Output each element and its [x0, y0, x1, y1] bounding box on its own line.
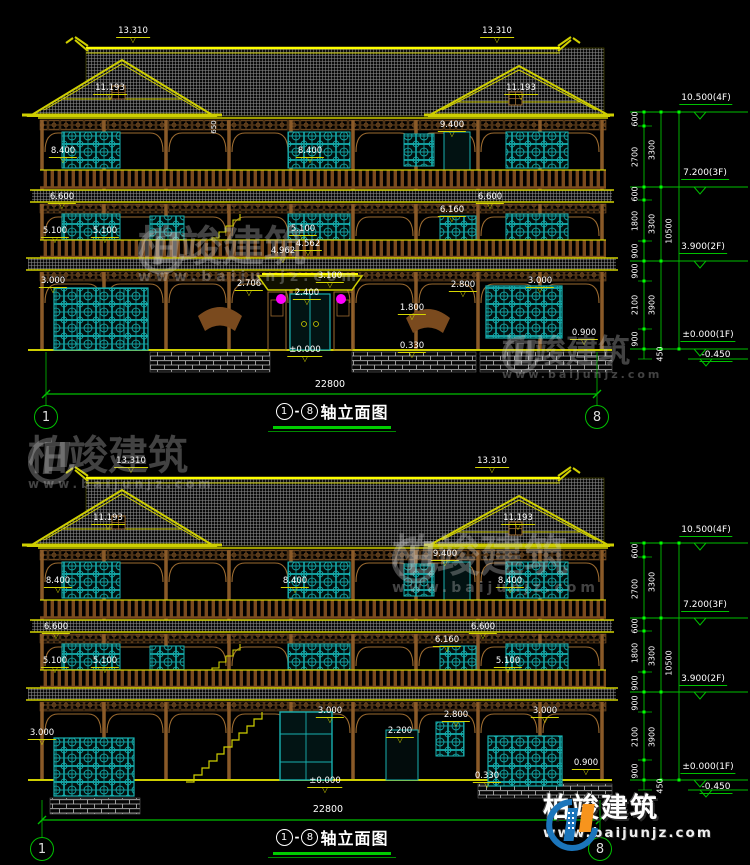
dim-label: 2100▽: [632, 293, 641, 317]
dim-label: 3300▽: [649, 212, 658, 236]
dim-label: 0.900▽: [570, 329, 598, 345]
dim-label: 5.100▽: [41, 657, 69, 673]
fan-ornament-left: [198, 307, 242, 331]
dim-label: 8.400▽: [44, 577, 72, 593]
dim-label: 650▽: [211, 118, 219, 135]
dim-label: ±0.000▽: [307, 777, 342, 793]
elevation-triangle-icon: ▽: [91, 524, 125, 530]
elevation-triangle-icon: ▽: [526, 287, 554, 293]
elevation-triangle-icon: ▽: [44, 587, 72, 593]
dim-label: 10500▽: [666, 216, 675, 245]
elevation-triangle-icon: ▽: [433, 646, 461, 652]
dim-label: 900▽: [632, 693, 641, 712]
lattice-window-right: [486, 286, 562, 338]
brand-logo: 柏竣建筑www.baijunjz.com: [543, 795, 713, 841]
elevation-triangle-icon: ▽: [501, 524, 535, 530]
elevation-triangle-icon: ▽: [41, 667, 69, 673]
dim-label: 6.160▽: [438, 206, 466, 222]
dim-label: 13.310▽: [114, 457, 148, 473]
dim-label: 13.310▽: [116, 27, 150, 43]
dim-label: 3.100▽: [316, 272, 344, 288]
elevation-triangle-icon: ▽: [480, 37, 514, 43]
dim-label: 3.900(2F)▽: [679, 243, 727, 254]
elevation-triangle-icon: ▽: [91, 237, 119, 243]
dim-label: 6.600▽: [42, 623, 70, 639]
elevation-triangle-icon: ▽: [307, 787, 342, 793]
elevation-triangle-icon: ▽: [431, 560, 459, 566]
dim-label: ±0.000▽: [287, 346, 322, 362]
elevation-triangle-icon: ▽: [316, 282, 344, 288]
dim-label: 4.962▽: [269, 247, 297, 263]
dim-label: 6.600▽: [476, 193, 504, 209]
dim-label: 900▽: [632, 329, 641, 348]
elevation-triangle-icon: ▽: [438, 216, 466, 222]
dim-label: 22800▽: [311, 805, 345, 816]
brand-logo-icon: [543, 795, 601, 859]
elevation-triangle-icon: ▽: [235, 290, 263, 296]
axis-bubble-1-bottom: 1: [30, 837, 54, 861]
dim-label: 3900▽: [649, 725, 658, 749]
dim-label: 900▽: [632, 261, 641, 280]
dim-label: 900▽: [632, 761, 641, 780]
elevation-triangle-icon: ▽: [281, 587, 309, 593]
dim-label: 1.800▽: [398, 304, 426, 320]
dim-label: 450▽: [657, 344, 666, 363]
dim-label: ±0.000(1F)▽: [680, 331, 735, 342]
dim-label: 6.600▽: [48, 193, 76, 209]
elevation-triangle-icon: ▽: [473, 782, 501, 788]
dim-label: ±0.000(1F)▽: [680, 763, 735, 774]
axis-circle-from: 1: [276, 403, 293, 420]
elevation-triangle-icon: ▽: [570, 339, 598, 345]
axis-bubble-8-top: 8: [585, 405, 609, 429]
dim-label: 2.800▽: [442, 711, 470, 727]
dim-label: 900▽: [632, 241, 641, 260]
dim-label: 8.400▽: [496, 577, 524, 593]
elevation-triangle-icon: ▽: [504, 94, 538, 100]
dim-label: -0.450▽: [699, 783, 732, 794]
dim-label: 1800▽: [632, 209, 641, 233]
elevation-triangle-icon: ▽: [469, 633, 497, 639]
axis-circle-to: 8: [301, 403, 318, 420]
elevation-triangle-icon: ▽: [296, 157, 324, 163]
dim-label: 2.800▽: [449, 281, 477, 297]
elevation-triangle-icon: ▽: [494, 667, 522, 673]
dim-label: 9.400▽: [438, 121, 466, 137]
elevation-triangle-icon: ▽: [39, 287, 67, 293]
dim-label: 2.400▽: [293, 289, 321, 305]
elevation-triangle-icon: ▽: [48, 203, 76, 209]
dim-label: 2700▽: [632, 145, 641, 169]
dim-label: 900▽: [632, 673, 641, 692]
elevation-triangle-icon: ▽: [114, 467, 148, 473]
elevation-triangle-icon: ▽: [398, 314, 426, 320]
dim-label: 2.200▽: [386, 727, 414, 743]
dim-label: 11.193▽: [504, 84, 538, 100]
dim-label: 7.200(3F)▽: [681, 169, 729, 180]
dim-label: 600▽: [632, 541, 641, 560]
dim-label: 3.000▽: [28, 729, 56, 745]
dim-label: 5.100▽: [41, 227, 69, 243]
dim-label: 600▽: [632, 109, 641, 128]
dim-label: 3300▽: [649, 138, 658, 162]
dim-label: 5.100▽: [91, 657, 119, 673]
elevation-triangle-icon: ▽: [398, 352, 426, 358]
elevation-triangle-icon: ▽: [294, 250, 322, 256]
elevation-triangle-icon: ▽: [442, 721, 470, 727]
dim-label: 2.706▽: [235, 280, 263, 296]
dim-label: -0.450▽: [699, 351, 732, 362]
dim-label: 8.400▽: [296, 147, 324, 163]
dim-label: 3.000▽: [39, 277, 67, 293]
elevation-triangle-icon: ▽: [438, 131, 466, 137]
elevation-triangle-icon: ▽: [287, 356, 322, 362]
small-window: [436, 722, 464, 756]
dim-label: 3.000▽: [526, 277, 554, 293]
dim-label: 3300▽: [649, 644, 658, 668]
elevation-triangle-icon: ▽: [269, 257, 297, 263]
lantern-left: [276, 294, 286, 304]
dim-label: 13.310▽: [475, 457, 509, 473]
elevation-triangle-icon: ▽: [49, 157, 77, 163]
dim-label: 11.193▽: [501, 514, 535, 530]
dim-label: 10.500(4F)▽: [679, 94, 732, 105]
elevation-triangle-icon: ▽: [42, 633, 70, 639]
bottom-drawing-title: 1-8轴立面图: [268, 825, 396, 858]
elevation-triangle-icon: ▽: [116, 37, 150, 43]
elevation-triangle-icon: ▽: [476, 203, 504, 209]
elevation-triangle-icon: ▽: [293, 299, 321, 305]
axis-circle-to: 8: [301, 829, 318, 846]
dim-label: 11.193▽: [93, 84, 127, 100]
lattice-doors-left: [54, 288, 148, 350]
dim-label: 1800▽: [632, 641, 641, 665]
elevation-triangle-icon: ▽: [93, 94, 127, 100]
title-text: 轴立面图: [320, 399, 388, 423]
dim-label: 0.330▽: [398, 342, 426, 358]
elevation-triangle-icon: ▽: [41, 237, 69, 243]
elevation-triangle-icon: ▽: [386, 737, 414, 743]
lattice-window-left: [54, 738, 134, 796]
dim-label: 600▽: [632, 616, 641, 635]
dim-label: 10500▽: [666, 648, 675, 677]
dim-label: 3.900(2F)▽: [679, 675, 727, 686]
elevation-triangle-icon: ▽: [449, 291, 477, 297]
dim-label: 3900▽: [649, 293, 658, 317]
elevation-triangle-icon: ▽: [496, 587, 524, 593]
dim-label: 22800▽: [313, 380, 347, 391]
dim-label: 8.400▽: [49, 147, 77, 163]
title-text: 轴立面图: [320, 825, 388, 849]
dim-label: 600▽: [632, 184, 641, 203]
dim-label: 5.100▽: [494, 657, 522, 673]
dim-label: 10.500(4F)▽: [679, 526, 732, 537]
elevation-triangle-icon: ▽: [475, 467, 509, 473]
dim-label: 8.400▽: [281, 577, 309, 593]
top-drawing-title: 1-8轴立面图: [268, 399, 396, 432]
dim-label: 2100▽: [632, 725, 641, 749]
elevation-triangle-icon: ▽: [531, 717, 559, 723]
dim-label: 4.562▽: [294, 240, 322, 256]
dim-label: 0.900▽: [572, 759, 600, 775]
dim-label: 3.000▽: [316, 707, 344, 723]
elevation-triangle-icon: ▽: [91, 667, 119, 673]
dim-label: 5.100▽: [91, 227, 119, 243]
dim-label: 6.600▽: [469, 623, 497, 639]
dim-label: 2700▽: [632, 577, 641, 601]
dim-label: 3300▽: [649, 570, 658, 594]
dim-label: 11.193▽: [91, 514, 125, 530]
axis-bubble-1-top: 1: [34, 405, 58, 429]
dim-label: 0.330▽: [473, 772, 501, 788]
dim-label: 7.200(3F)▽: [681, 601, 729, 612]
cad-canvas: 13.310▽13.310▽11.193▽11.193▽9.400▽650▽8.…: [0, 0, 750, 865]
dim-label: 13.310▽: [480, 27, 514, 43]
lantern-right: [336, 294, 346, 304]
elevation-triangle-icon: ▽: [316, 717, 344, 723]
axis-circle-from: 1: [276, 829, 293, 846]
dim-label: 9.400▽: [431, 550, 459, 566]
elevation-triangle-icon: ▽: [572, 769, 600, 775]
dim-label: 6.160▽: [433, 636, 461, 652]
elevation-triangle-icon: ▽: [28, 739, 56, 745]
dim-label: 3.000▽: [531, 707, 559, 723]
